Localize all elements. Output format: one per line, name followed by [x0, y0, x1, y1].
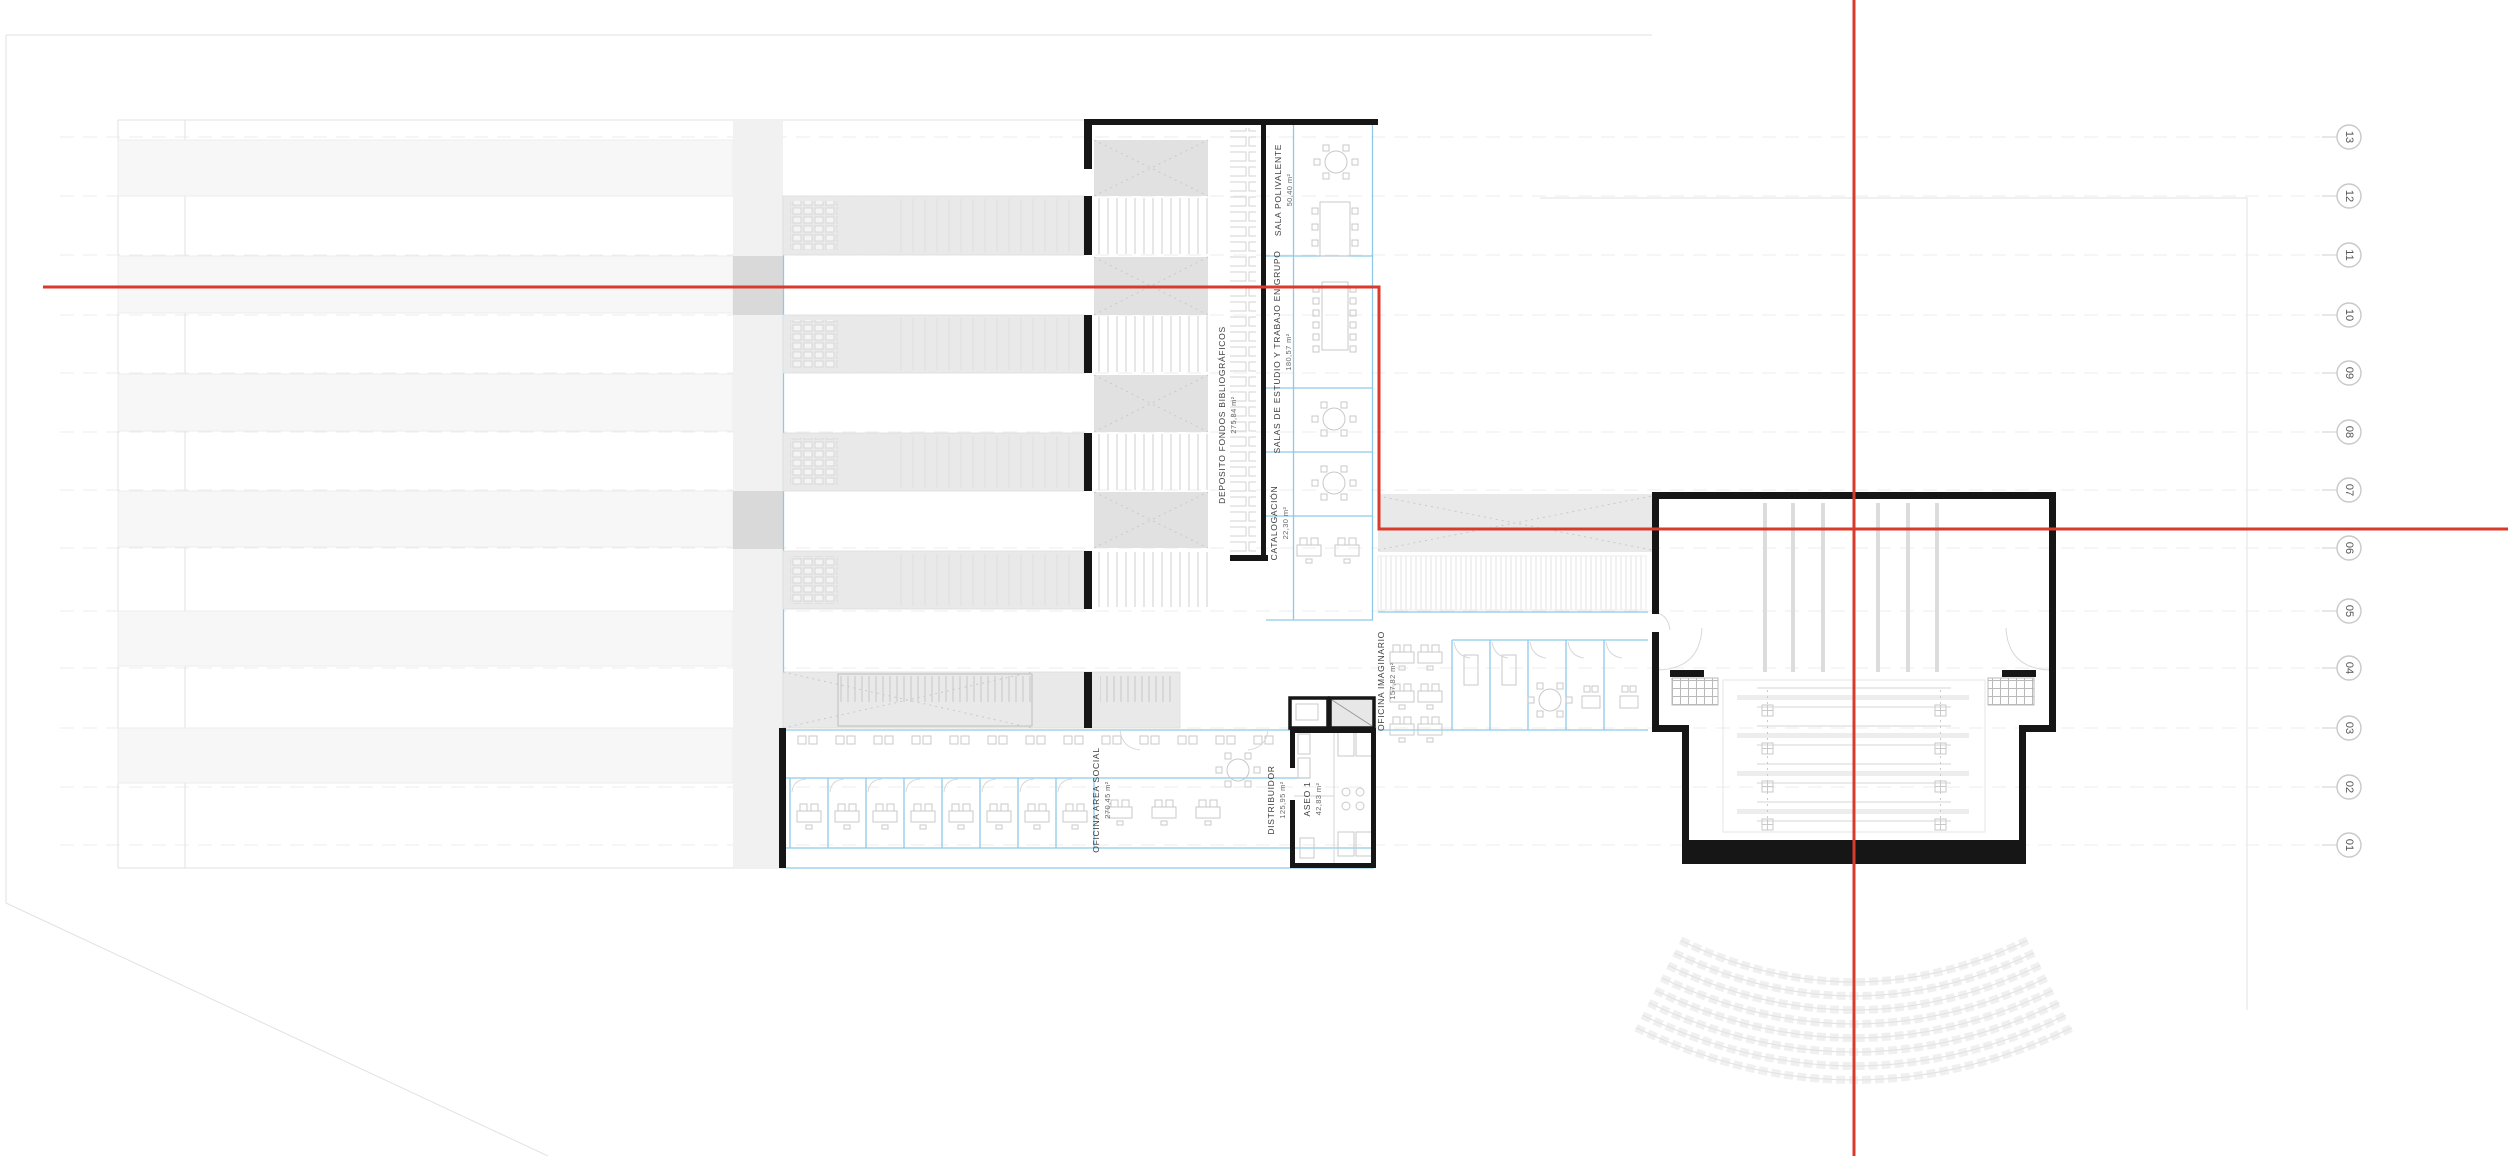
grid-bubble-label: 11 [2343, 249, 2355, 260]
room-area: 125,95 m² [1278, 781, 1287, 818]
chair-pair [1026, 736, 1045, 744]
room-label-oficina-area-social: OFICINA AREA SOCIAL270,45 m² [1091, 747, 1112, 852]
room-area: 270,45 m² [1103, 781, 1112, 818]
ghost-band [118, 374, 733, 431]
chair-pair [950, 736, 969, 744]
book-shelf-column [1230, 128, 1256, 554]
ghost-band [118, 256, 733, 313]
catalogacion-furniture [1297, 538, 1359, 563]
room-label-distribuidor: DISTRIBUIDOR125,95 m² [1266, 765, 1287, 834]
desk [873, 804, 897, 829]
room-name: OFICINA IMAGINARIO [1376, 631, 1386, 731]
floor-plan-canvas: 13121110090807060504030201 [0, 0, 2508, 1156]
room-area: 180,57 m² [1284, 333, 1293, 370]
chair-pair [988, 736, 1007, 744]
walkway-band [1378, 494, 1654, 552]
depot-shelving [1094, 552, 1208, 607]
shelving-band [783, 196, 1092, 255]
room-name: OFICINA AREA SOCIAL [1091, 747, 1101, 852]
chair-pair [836, 736, 855, 744]
grid-bubble-label: 08 [2343, 426, 2355, 438]
mid-wing-shelving-bands [783, 196, 1092, 609]
room-label-salas-estudio-trabajo-grupo: SALAS DE ESTUDIO Y TRABAJO EN GRUPO180,5… [1272, 250, 1293, 453]
shelving-band [783, 315, 1092, 373]
room-area: 275,84 m² [1229, 396, 1238, 433]
chair-pair [1064, 736, 1083, 744]
grid-bubble-label: 03 [2343, 722, 2355, 734]
grid-bubble-label: 09 [2343, 367, 2355, 379]
chair-pair [1102, 736, 1121, 744]
grid-bubble-label: 07 [2343, 484, 2355, 496]
desk [1063, 804, 1087, 829]
chair-pair [1140, 736, 1159, 744]
depot-shelving [1094, 198, 1208, 254]
chair-pair [798, 736, 817, 744]
desk [1025, 804, 1049, 829]
chair-pair [1216, 736, 1235, 744]
room-area: 50,40 m² [1285, 174, 1294, 207]
stair-left [1672, 678, 1718, 705]
grid-bubble-label: 05 [2343, 605, 2355, 617]
desk [987, 804, 1011, 829]
chair-pair [912, 736, 931, 744]
desk [911, 804, 935, 829]
grid-bubble-label: 10 [2343, 309, 2355, 321]
grid-bubble-label: 12 [2343, 190, 2355, 202]
room-area: 157,82 m² [1388, 662, 1397, 699]
ghost-band [118, 491, 733, 547]
ghost-band [118, 140, 733, 196]
desk [949, 804, 973, 829]
central-building [1084, 119, 1378, 620]
room-area: 42,83 m² [1314, 783, 1323, 816]
grid-bubble-label: 13 [2343, 131, 2355, 143]
room-name: CATALOGACIÓN [1269, 486, 1279, 561]
ghost-band [118, 611, 733, 666]
room-label-sala-polivalente: SALA POLIVALENTE50,40 m² [1273, 144, 1294, 236]
chair-pair [1178, 736, 1197, 744]
depot-block [1094, 375, 1208, 432]
room-label-oficina-imaginario: OFICINA IMAGINARIO157,82 m² [1376, 631, 1397, 731]
floor-plan-drawing: 13121110090807060504030201 [0, 0, 2508, 1156]
desk [835, 804, 859, 829]
oficina-imaginario [1378, 556, 1648, 742]
sala-polivalente-furniture [1312, 145, 1358, 256]
ramp-hatch [1378, 556, 1646, 610]
depot-block [1094, 140, 1208, 196]
service-strip [733, 120, 784, 868]
grid-bubble-label: 04 [2343, 662, 2355, 674]
stair-band [783, 672, 1180, 728]
room-name: ASEO 1 [1302, 782, 1312, 817]
desk [797, 804, 821, 829]
room-name: SALA POLIVALENTE [1273, 144, 1283, 236]
room-name: DISTRIBUIDOR [1266, 765, 1276, 834]
room-area: 22,30 m² [1281, 507, 1290, 540]
shelving-band [783, 551, 1092, 609]
stair-right [1988, 678, 2034, 705]
room-name: DEPOSITO FONDOS BIBLIOGRÁFICOS [1217, 326, 1227, 504]
chair-pair [874, 736, 893, 744]
depot-shelving [1094, 434, 1208, 490]
shelving-band [783, 433, 1092, 491]
grid-bubble-label: 02 [2343, 781, 2355, 793]
room-name: SALAS DE ESTUDIO Y TRABAJO EN GRUPO [1272, 250, 1282, 453]
ghost-band [118, 728, 733, 783]
depot-shelving [1094, 316, 1208, 372]
grid-bubble-label: 06 [2343, 542, 2355, 554]
depot-block [1094, 492, 1208, 548]
grid-bubble-label: 01 [2343, 839, 2355, 851]
room-label-catalogacion: CATALOGACIÓN22,30 m² [1269, 486, 1290, 561]
